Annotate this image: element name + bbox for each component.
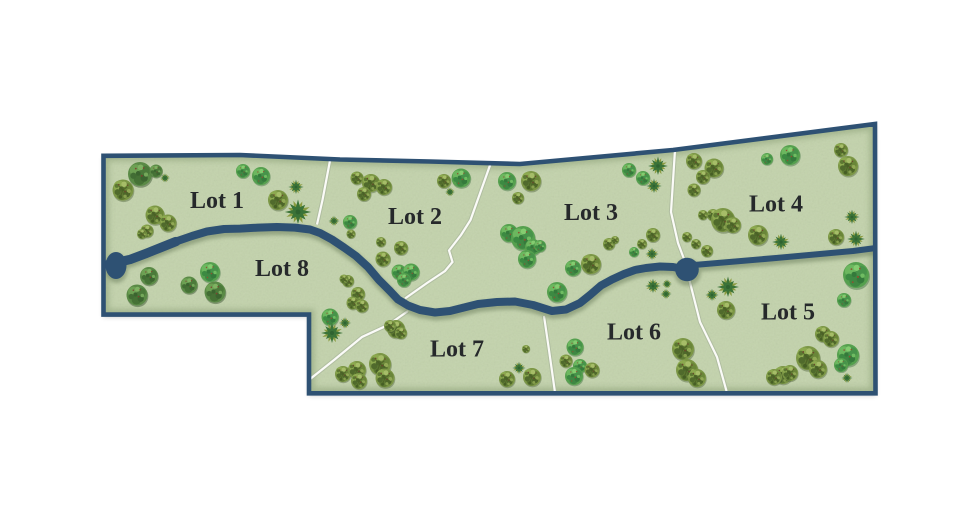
svg-text:Lot 3: Lot 3 — [564, 200, 618, 226]
svg-text:Lot 7: Lot 7 — [430, 337, 484, 363]
svg-text:Lot 1: Lot 1 — [190, 188, 244, 214]
svg-text:Lot 4: Lot 4 — [749, 192, 803, 218]
svg-text:Lot 6: Lot 6 — [607, 320, 661, 346]
svg-text:Lot 5: Lot 5 — [761, 300, 815, 326]
svg-text:Lot 2: Lot 2 — [388, 204, 442, 230]
svg-text:Lot 8: Lot 8 — [255, 256, 309, 282]
